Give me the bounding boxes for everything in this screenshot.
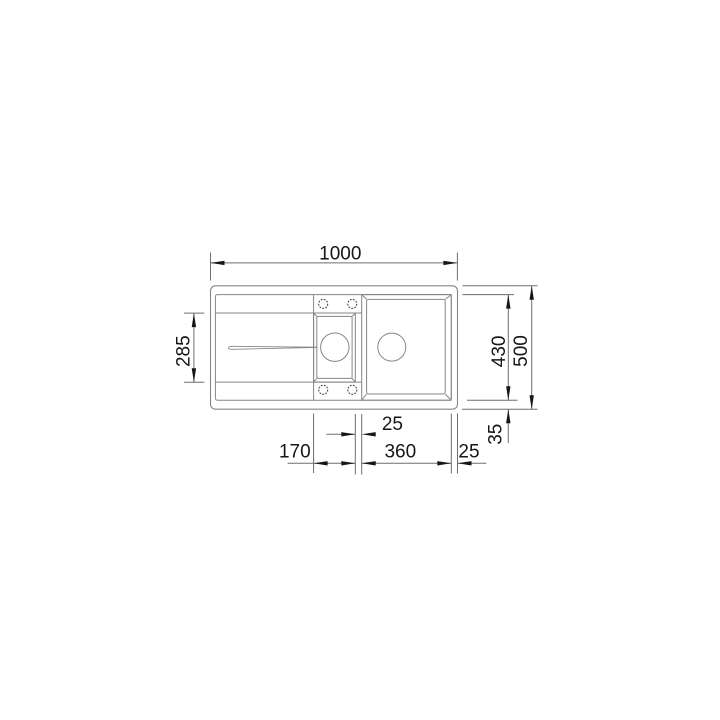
svg-text:1000: 1000 — [319, 243, 361, 264]
svg-text:430: 430 — [489, 336, 510, 368]
svg-text:35: 35 — [485, 424, 506, 445]
svg-text:170: 170 — [279, 441, 311, 462]
svg-text:285: 285 — [173, 335, 194, 367]
svg-text:500: 500 — [511, 335, 532, 367]
svg-text:25: 25 — [458, 441, 479, 462]
svg-text:360: 360 — [384, 441, 416, 462]
svg-text:25: 25 — [382, 414, 403, 435]
